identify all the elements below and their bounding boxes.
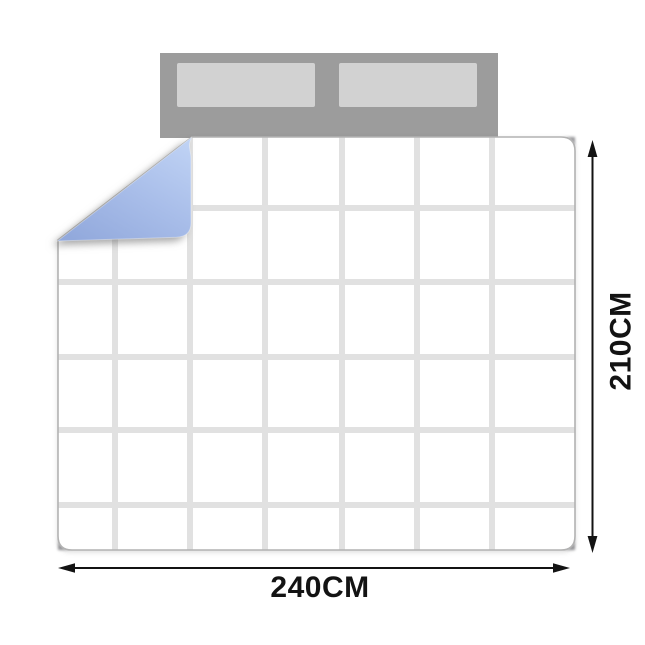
arrow-left-icon <box>58 563 75 573</box>
headboard <box>160 53 498 138</box>
width-dimension-label: 240CM <box>270 571 369 604</box>
height-dimension-label: 210CM <box>605 291 638 390</box>
arrow-right-icon <box>553 563 570 573</box>
pillow-right <box>339 63 477 107</box>
width-dimension: 240CM <box>58 563 570 604</box>
diagram-canvas: 210CM 240CM <box>0 0 645 645</box>
arrow-down-icon <box>588 536 598 553</box>
folded-corner <box>58 137 193 241</box>
height-dimension: 210CM <box>588 140 638 553</box>
pillow-left <box>177 63 315 107</box>
bed-quilt-size-diagram: 210CM 240CM <box>0 0 645 645</box>
arrow-up-icon <box>588 140 598 157</box>
quilt <box>58 137 576 550</box>
